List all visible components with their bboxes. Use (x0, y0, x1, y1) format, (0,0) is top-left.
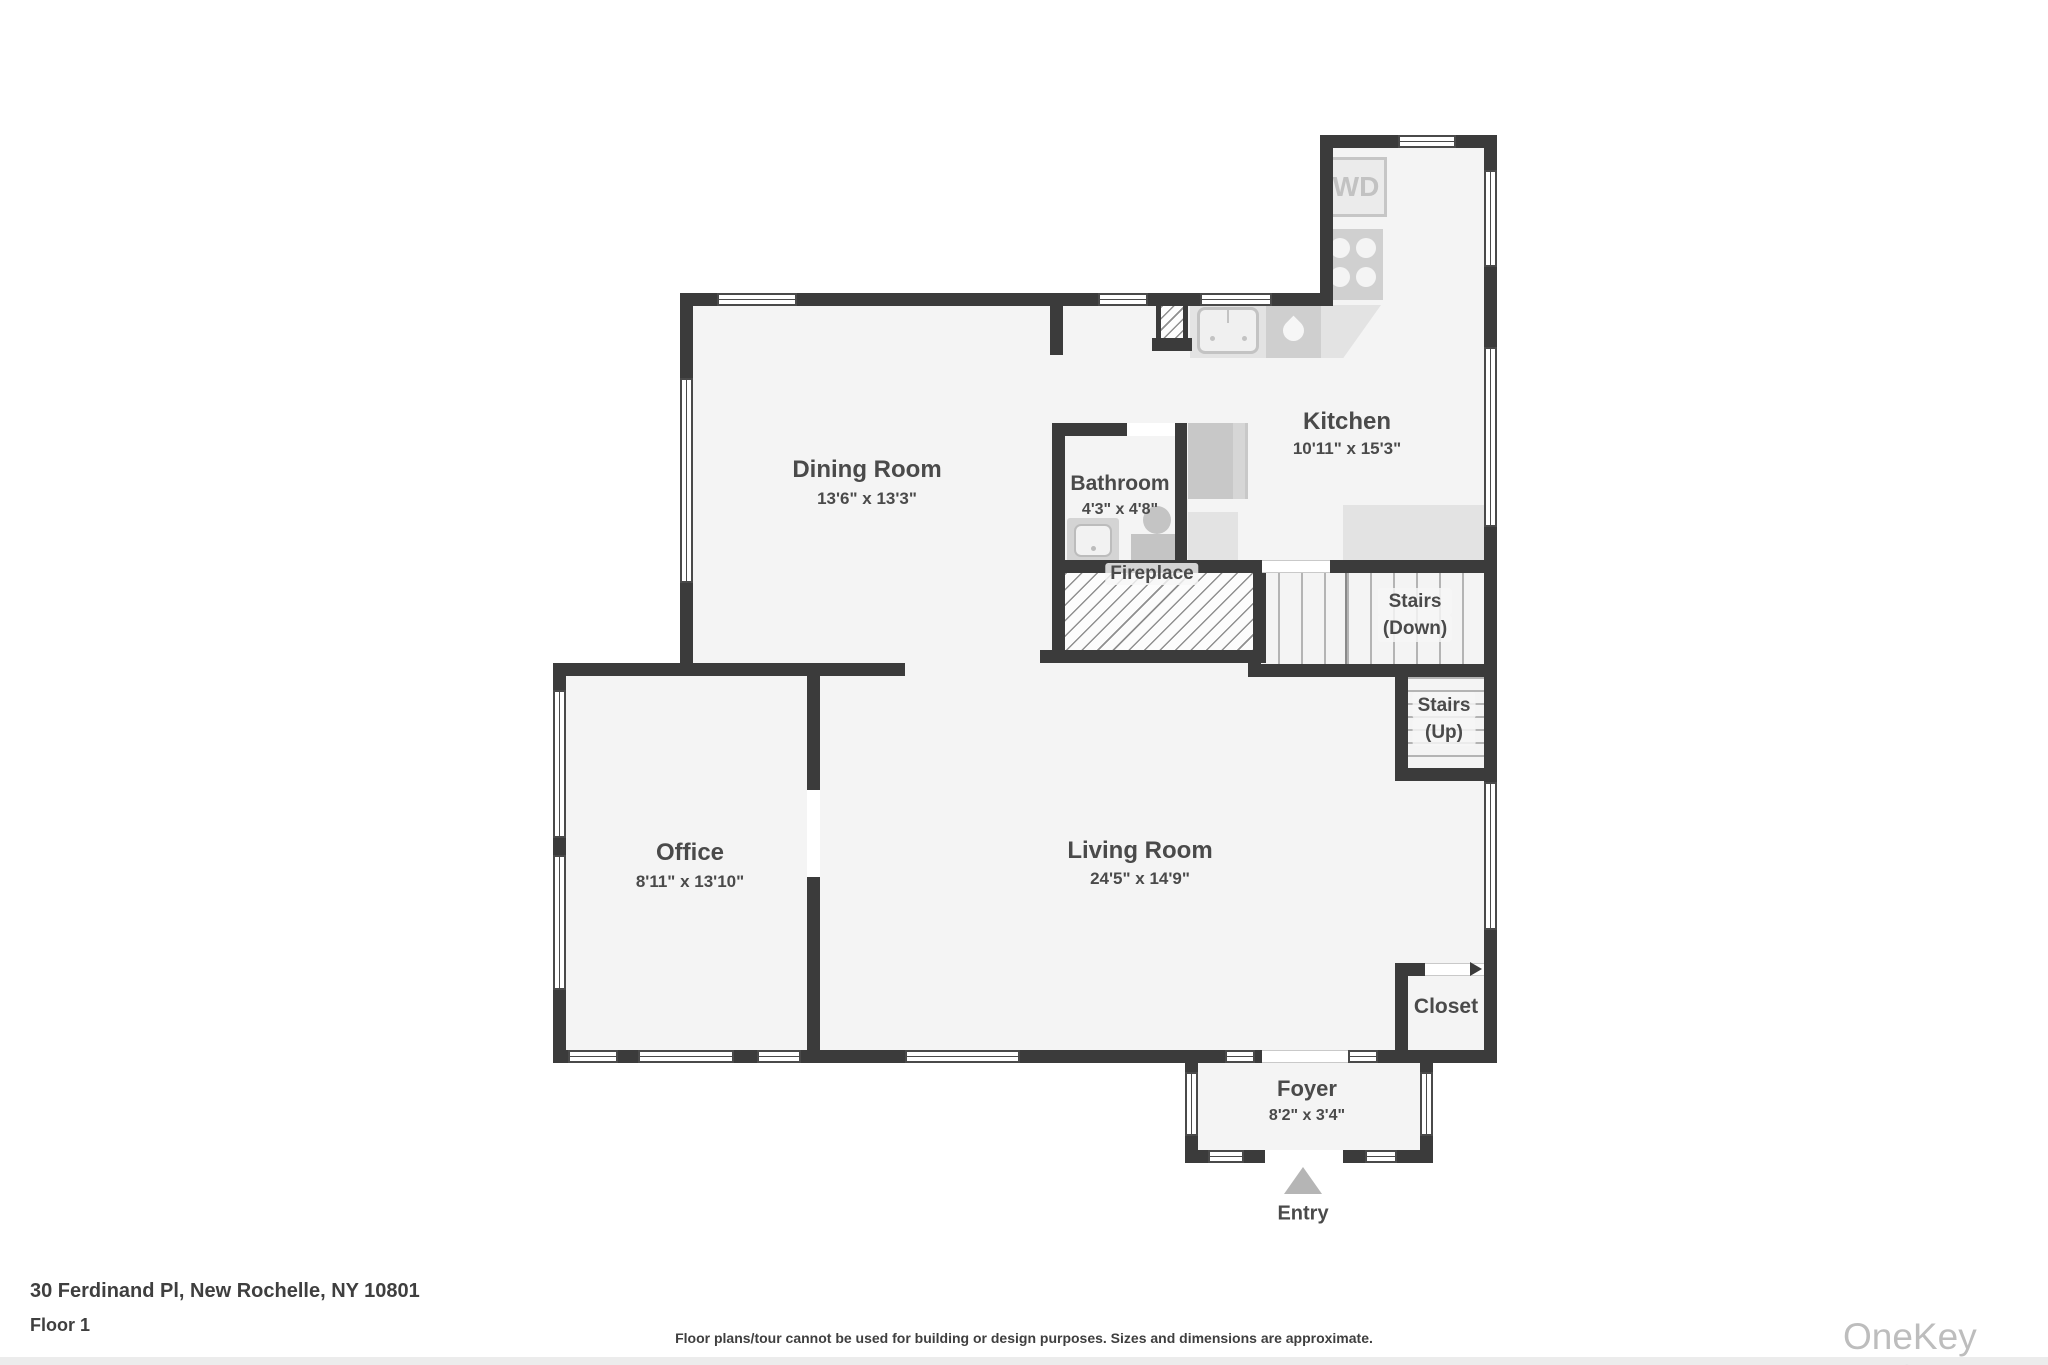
window (1398, 135, 1456, 148)
address-text: 30 Ferdinand Pl, New Rochelle, NY 10801 (30, 1280, 420, 1303)
stairs-up-line2: (Up) (1413, 719, 1476, 746)
wall-closet-left (1395, 963, 1408, 1063)
stairs-down-label: Stairs (Down) (1378, 588, 1452, 642)
stove-burner-icon (1330, 238, 1350, 258)
room-dims-bathroom: 4'3" x 4'8" (1082, 501, 1158, 519)
room-dims-dining: 13'6" x 13'3" (817, 489, 917, 509)
window (1208, 1150, 1244, 1163)
window (1484, 170, 1497, 267)
wall-stub-dining-kitchen (1050, 303, 1063, 355)
room-label-closet: Closet (1414, 995, 1478, 1019)
stairs-down-line1: Stairs (1378, 588, 1452, 615)
sink-faucet-line (1227, 310, 1229, 323)
window (638, 1050, 734, 1063)
wall-stairs-up-bottom (1395, 768, 1497, 781)
wall-fireplace-right (1253, 560, 1266, 663)
stove-burner-icon (1356, 238, 1376, 258)
sink-dot (1210, 336, 1215, 341)
watermark: OneKey MLS (1843, 1316, 2048, 1365)
kitchen-sink-icon (1197, 307, 1259, 354)
disclaimer-text: Floor plans/tour cannot be used for buil… (0, 1330, 2048, 1346)
window (1185, 1072, 1198, 1136)
window (757, 1050, 801, 1063)
droplet-icon (1279, 316, 1309, 346)
window (1225, 1050, 1255, 1063)
room-label-office: Office (656, 839, 724, 867)
fireplace-label: Fireplace (1105, 563, 1198, 585)
bathroom-door-opening (1127, 423, 1175, 436)
kitchen-appliance-block (1188, 512, 1238, 560)
bottom-edge-strip (0, 1357, 2048, 1365)
bathroom-sink-basin (1074, 524, 1112, 557)
office-door-opening (807, 790, 820, 877)
sink-dot (1242, 336, 1247, 341)
room-label-kitchen: Kitchen (1303, 408, 1391, 436)
room-dims-foyer: 8'2" x 3'4" (1269, 1107, 1345, 1125)
washer-dryer-label: WD (1333, 171, 1380, 203)
refrigerator-icon (1188, 423, 1248, 499)
window (680, 378, 693, 583)
wall-below-stairs-down (1248, 664, 1497, 677)
wall-stairs-up-left (1395, 677, 1408, 781)
window (717, 293, 797, 306)
window (905, 1050, 1020, 1063)
room-dims-office: 8'11" x 13'10" (636, 872, 744, 892)
window (1484, 782, 1497, 930)
wall-office-top (553, 663, 905, 676)
window (553, 855, 566, 990)
room-dims-kitchen: 10'11" x 15'3" (1293, 439, 1401, 459)
entry-label: Entry (1277, 1203, 1328, 1226)
kitchen-counter-bottom (1343, 505, 1484, 560)
wall-bathroom-left (1052, 423, 1065, 663)
wall-connector-stairs (1248, 650, 1261, 677)
room-label-living: Living Room (1067, 837, 1212, 865)
refrigerator-door-strip (1233, 423, 1245, 499)
wall-bathroom-right (1175, 423, 1187, 570)
window (568, 1050, 618, 1063)
foyer-passage-opening (1262, 1050, 1348, 1063)
stove-burner-icon (1356, 267, 1376, 287)
window (1098, 293, 1148, 306)
window (553, 690, 566, 838)
wall-closet-top (1395, 963, 1425, 976)
dishwasher-icon (1266, 305, 1321, 358)
stairs-up-line1: Stairs (1413, 692, 1476, 719)
window (1348, 1050, 1378, 1063)
window (1420, 1072, 1433, 1136)
toilet-bowl (1131, 534, 1179, 562)
bathroom-sink-drain-dot (1091, 546, 1096, 551)
room-label-bathroom: Bathroom (1070, 472, 1169, 496)
washer-dryer-icon: WD (1325, 157, 1387, 217)
kitchen-hall-door-opening (1262, 560, 1330, 573)
entry-door-opening (1265, 1150, 1343, 1163)
stove-burner-icon (1330, 267, 1350, 287)
window (1484, 347, 1497, 527)
window (1200, 293, 1272, 306)
bathroom-sink-icon (1067, 518, 1119, 563)
chimney-cap (1152, 338, 1192, 351)
wall-below-fireplace (1040, 650, 1255, 663)
stairs-down-rail-line (1345, 573, 1347, 664)
wall-kitchen-wing-left (1320, 135, 1333, 305)
room-dims-living: 24'5" x 14'9" (1090, 869, 1190, 889)
closet-door-arrow-icon (1470, 962, 1482, 976)
stairs-up-label: Stairs (Up) (1413, 692, 1476, 746)
stairs-down-line2: (Down) (1378, 615, 1452, 642)
room-label-dining: Dining Room (792, 456, 941, 484)
entry-arrow-icon (1284, 1167, 1322, 1194)
window (1365, 1150, 1397, 1163)
floor-plan: WD (0, 0, 2048, 1365)
room-label-foyer: Foyer (1277, 1076, 1337, 1102)
